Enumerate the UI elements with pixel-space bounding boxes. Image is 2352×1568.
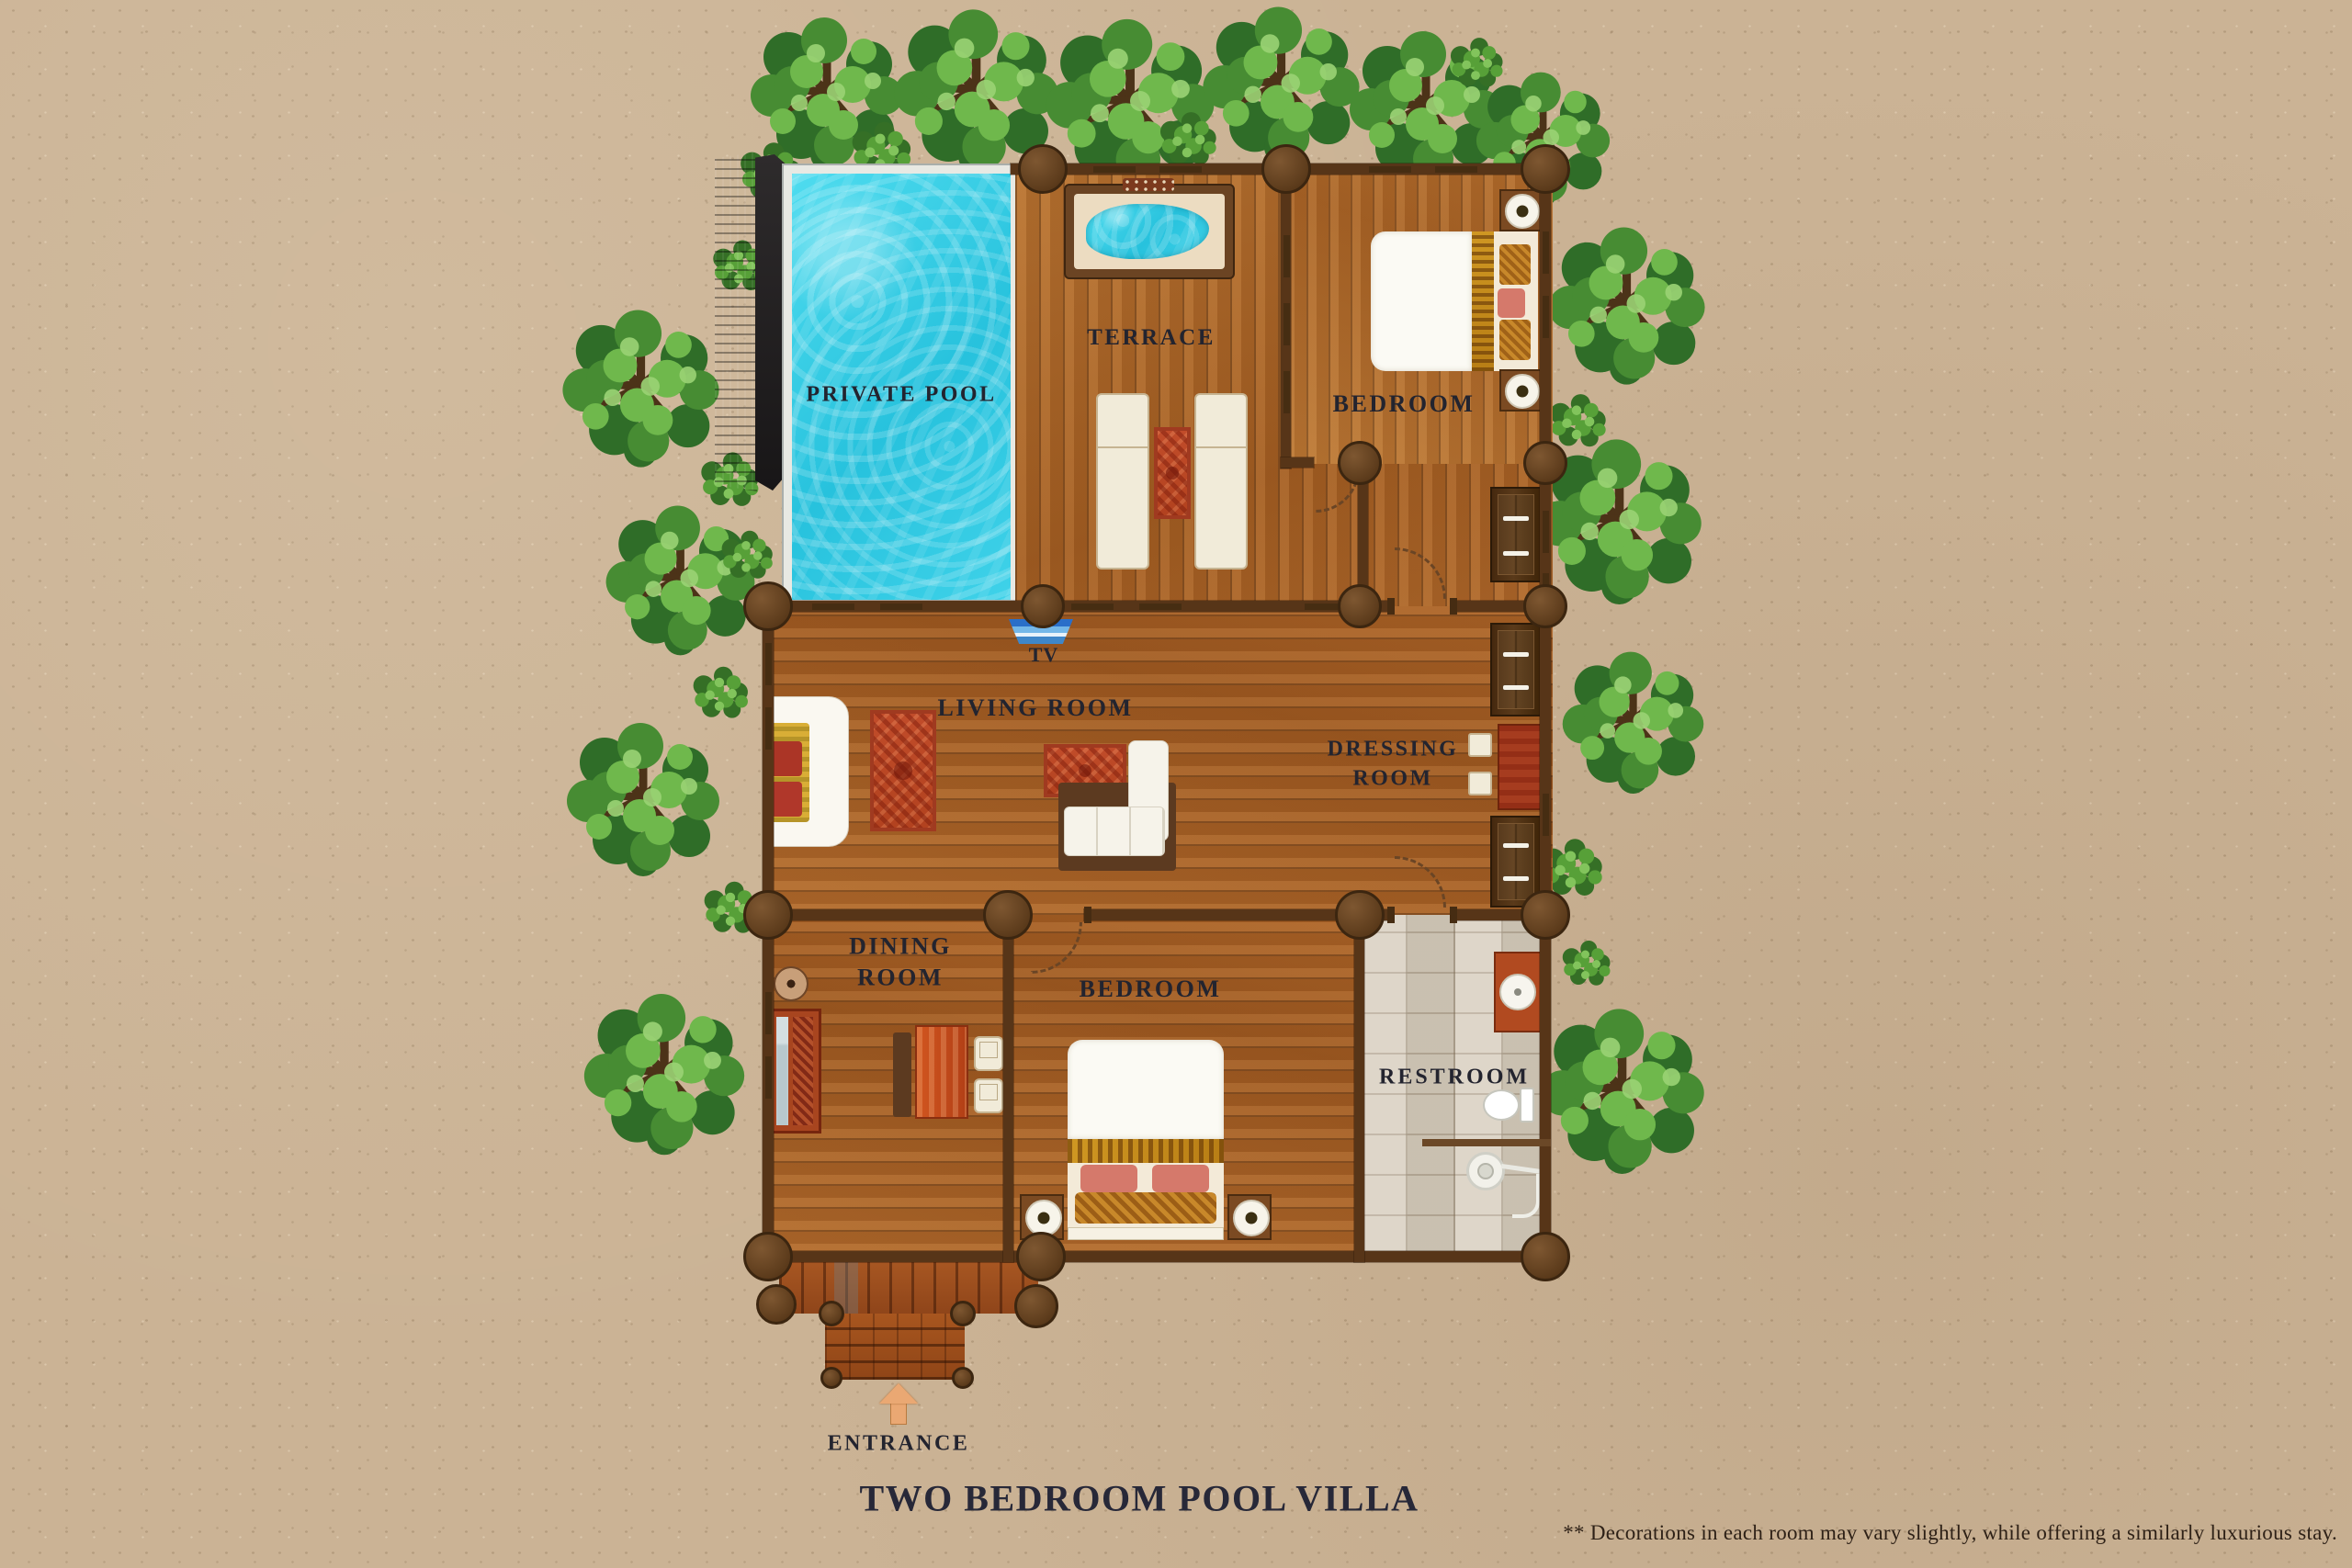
post — [1016, 1232, 1066, 1281]
window-marker — [1093, 166, 1136, 173]
door-jamb — [1084, 907, 1091, 923]
toilet — [1483, 1089, 1520, 1121]
entrance-arrow-icon — [878, 1383, 919, 1427]
label-restroom: RESTROOM — [1379, 1066, 1530, 1090]
disclaimer-text: ** Decorations in each room may vary sli… — [1563, 1521, 2337, 1545]
lamp — [1505, 194, 1540, 229]
post — [743, 890, 793, 940]
window-marker — [1159, 166, 1202, 173]
dining-table — [915, 1025, 968, 1119]
wall-bedroom-top-bottom — [1281, 457, 1314, 468]
pillow — [1152, 1165, 1209, 1192]
sofa-seat — [1064, 807, 1165, 856]
lamp — [1025, 1200, 1062, 1236]
window-marker — [1283, 303, 1290, 345]
decor-plate — [774, 966, 808, 1001]
post — [1338, 441, 1382, 485]
window-marker — [1543, 231, 1549, 274]
post — [1021, 584, 1065, 628]
wall-dining-bedroom — [1003, 909, 1013, 1262]
window-marker — [765, 707, 772, 750]
pillow — [1499, 320, 1531, 360]
living-rug — [870, 710, 936, 831]
post — [1521, 1232, 1570, 1281]
jacuzzi — [1064, 184, 1235, 279]
window-marker — [765, 1056, 772, 1099]
window-marker — [1543, 296, 1549, 338]
label-entrance: ENTRANCE — [828, 1432, 970, 1457]
wardrobe — [1490, 623, 1542, 716]
entrance-deck — [779, 1260, 1038, 1314]
jacuzzi-control — [1123, 178, 1174, 191]
post — [983, 890, 1033, 940]
window-marker — [1071, 604, 1114, 610]
post — [756, 1284, 797, 1325]
door-jamb — [1450, 907, 1457, 923]
bolster — [1075, 1192, 1216, 1224]
wall-shower-divider — [1422, 1139, 1551, 1146]
label-dressing-room: DRESSING ROOM — [1319, 735, 1466, 793]
sideboard — [766, 1009, 821, 1134]
post — [819, 1301, 844, 1326]
terrace-rug — [1154, 427, 1191, 519]
door-jamb — [1387, 598, 1395, 615]
wall-bedroom-restroom — [1354, 909, 1364, 1262]
post — [1523, 584, 1567, 628]
door-jamb — [1387, 907, 1395, 923]
label-private-pool: PRIVATE POOL — [806, 383, 996, 408]
window-marker — [1283, 371, 1290, 413]
label-dining-room: DINING ROOM — [836, 931, 965, 995]
dressing-stool — [1468, 772, 1492, 795]
lounge-chair — [1194, 393, 1248, 570]
pillow — [1080, 1165, 1137, 1192]
bed-sheet — [1068, 1040, 1224, 1139]
dressing-table — [1498, 724, 1542, 810]
wardrobe — [1490, 487, 1542, 582]
dressing-stool — [1468, 733, 1492, 757]
post — [1521, 144, 1570, 194]
window-marker — [1369, 166, 1411, 173]
post — [1335, 890, 1385, 940]
carved-panel — [793, 1017, 813, 1125]
window-marker — [765, 992, 772, 1034]
post — [1338, 584, 1382, 628]
window-marker — [812, 604, 854, 610]
post — [1261, 144, 1311, 194]
label-tv: TV — [1029, 643, 1059, 667]
post — [1014, 1284, 1058, 1328]
post — [1523, 441, 1567, 485]
window-marker — [1543, 794, 1549, 836]
dining-chair — [974, 1036, 1003, 1071]
post — [743, 581, 793, 631]
post — [950, 1301, 976, 1326]
label-living-room: LIVING ROOM — [937, 694, 1133, 722]
window-marker — [1139, 604, 1182, 610]
floor-plan: PRIVATE POOL TERRACE BEDROOM TV LIVING R… — [0, 0, 2352, 1568]
sink — [1499, 974, 1536, 1010]
window-marker — [1283, 235, 1290, 277]
page-title: TWO BEDROOM POOL VILLA — [859, 1477, 1419, 1520]
daybed-pillow — [771, 782, 802, 817]
door-jamb — [1450, 598, 1457, 615]
window-marker — [1543, 511, 1549, 553]
post — [1018, 144, 1068, 194]
pillow — [1499, 244, 1531, 285]
window-marker — [880, 604, 922, 610]
label-bedroom-top: BEDROOM — [1333, 390, 1476, 418]
label-bedroom-bottom: BEDROOM — [1080, 976, 1222, 1003]
post — [952, 1367, 974, 1389]
post — [1521, 890, 1570, 940]
glass-panel — [776, 1017, 788, 1125]
wall-bottom — [763, 1251, 1551, 1262]
label-terrace: TERRACE — [1087, 325, 1216, 351]
headboard — [1068, 1227, 1224, 1240]
bed-pillows — [1494, 231, 1538, 371]
window-marker — [1435, 166, 1477, 173]
lamp — [1505, 374, 1540, 409]
dining-chair — [974, 1078, 1003, 1113]
daybed-pillow — [771, 741, 802, 776]
lounge-chair — [1096, 393, 1149, 570]
bed-sheet — [1371, 231, 1472, 371]
daybed — [764, 696, 849, 847]
toilet-tank — [1520, 1088, 1534, 1122]
dining-bench — [893, 1032, 911, 1117]
bed-runner — [1068, 1139, 1224, 1163]
bed-runner — [1472, 231, 1494, 371]
bed — [1371, 231, 1538, 371]
shower-hose — [1512, 1174, 1540, 1218]
bed-pillow-zone — [1068, 1163, 1224, 1227]
shower-head — [1466, 1152, 1505, 1190]
lamp — [1233, 1200, 1270, 1236]
post — [820, 1367, 842, 1389]
bed — [1068, 1040, 1224, 1240]
roof-ridge — [715, 152, 757, 491]
entrance-steps — [825, 1314, 965, 1380]
window-marker — [765, 643, 772, 685]
pillow — [1498, 288, 1525, 318]
post — [743, 1232, 793, 1281]
